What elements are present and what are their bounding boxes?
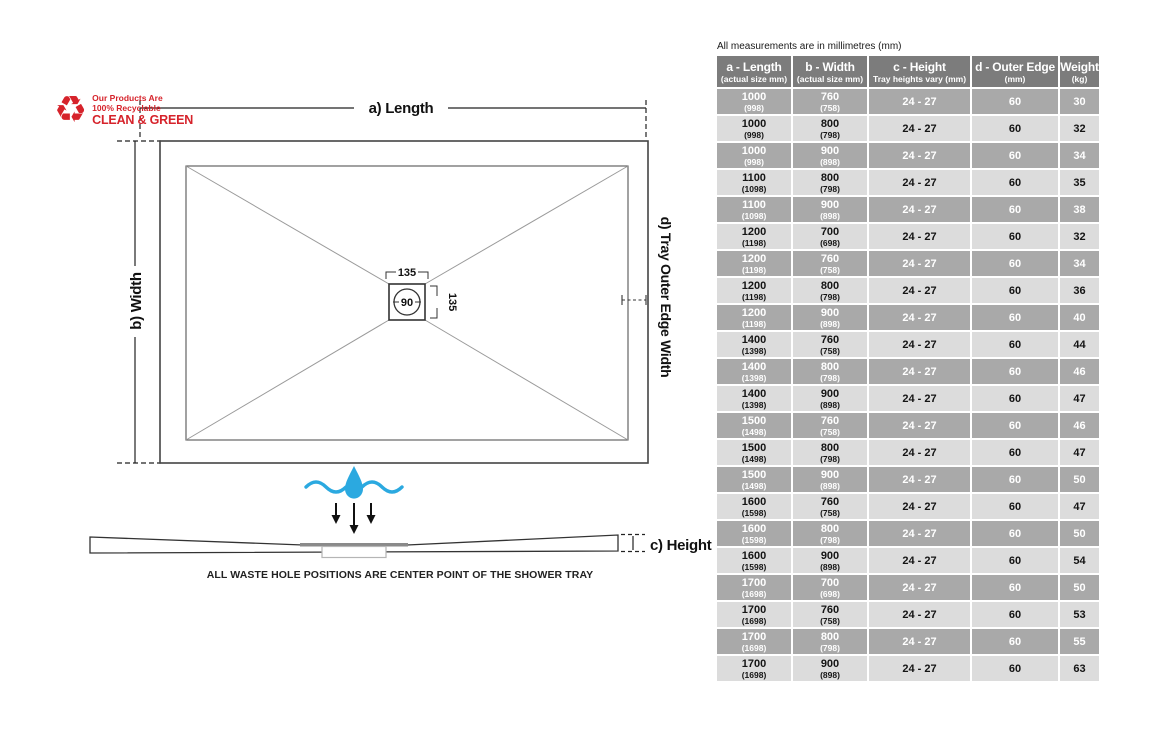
col-header-length: a - Length (actual size mm) bbox=[717, 56, 791, 87]
cell-height: 24 - 27 bbox=[869, 224, 970, 249]
cell-width-nominal: 900 bbox=[793, 550, 867, 562]
cell-width: 900 (898) bbox=[793, 197, 867, 222]
cell-outer-edge: 60 bbox=[972, 602, 1058, 627]
cell-width-actual: (698) bbox=[793, 589, 867, 599]
cell-height: 24 - 27 bbox=[869, 386, 970, 411]
cell-width: 900 (898) bbox=[793, 467, 867, 492]
cell-length-nominal: 1200 bbox=[717, 280, 791, 292]
cell-width: 800 (798) bbox=[793, 278, 867, 303]
cell-length: 1400 (1398) bbox=[717, 359, 791, 384]
cell-width-nominal: 900 bbox=[793, 307, 867, 319]
cell-length-nominal: 1500 bbox=[717, 415, 791, 427]
cell-width: 760 (758) bbox=[793, 602, 867, 627]
spec-table-row: 1400 (1398) 760 (758) 24 - 27 60 44 bbox=[717, 332, 1099, 357]
col-header-length-subtitle: (actual size mm) bbox=[717, 74, 791, 84]
cell-width-nominal: 760 bbox=[793, 496, 867, 508]
cell-outer-edge: 60 bbox=[972, 548, 1058, 573]
cell-length: 1100 (1098) bbox=[717, 170, 791, 195]
cell-length: 1600 (1598) bbox=[717, 548, 791, 573]
cell-height: 24 - 27 bbox=[869, 494, 970, 519]
cell-weight: 50 bbox=[1060, 467, 1099, 492]
cell-outer-edge: 60 bbox=[972, 89, 1058, 114]
cell-width: 760 (758) bbox=[793, 332, 867, 357]
spec-table-row: 1700 (1698) 900 (898) 24 - 27 60 63 bbox=[717, 656, 1099, 681]
cell-width: 760 (758) bbox=[793, 494, 867, 519]
cell-weight: 46 bbox=[1060, 413, 1099, 438]
cell-width-actual: (798) bbox=[793, 184, 867, 194]
cell-weight: 34 bbox=[1060, 251, 1099, 276]
cell-length-nominal: 1000 bbox=[717, 145, 791, 157]
cell-width-actual: (898) bbox=[793, 670, 867, 680]
cell-weight: 53 bbox=[1060, 602, 1099, 627]
cell-width: 800 (798) bbox=[793, 359, 867, 384]
logo-line-3: CLEAN & GREEN bbox=[92, 113, 193, 127]
cell-width: 760 (758) bbox=[793, 89, 867, 114]
spec-table-row: 1600 (1598) 800 (798) 24 - 27 60 50 bbox=[717, 521, 1099, 546]
cell-width: 800 (798) bbox=[793, 440, 867, 465]
cell-length-nominal: 1400 bbox=[717, 361, 791, 373]
cell-height: 24 - 27 bbox=[869, 440, 970, 465]
cell-length-actual: (1498) bbox=[717, 481, 791, 491]
cell-width-actual: (758) bbox=[793, 346, 867, 356]
cell-weight: 46 bbox=[1060, 359, 1099, 384]
cell-weight: 55 bbox=[1060, 629, 1099, 654]
cell-length-nominal: 1700 bbox=[717, 631, 791, 643]
cell-width-nominal: 760 bbox=[793, 415, 867, 427]
cell-length: 1600 (1598) bbox=[717, 494, 791, 519]
cell-width-nominal: 800 bbox=[793, 631, 867, 643]
spec-sheet-page: ♻ Our Products Are 100% Recyclable CLEAN… bbox=[0, 0, 1156, 742]
cell-outer-edge: 60 bbox=[972, 197, 1058, 222]
cell-length-nominal: 1200 bbox=[717, 307, 791, 319]
cell-length-nominal: 1500 bbox=[717, 442, 791, 454]
waste-dim-top-label: 135 bbox=[398, 267, 416, 279]
col-header-height-subtitle: Tray heights vary (mm) bbox=[869, 74, 970, 84]
cell-weight: 34 bbox=[1060, 143, 1099, 168]
cell-weight: 32 bbox=[1060, 224, 1099, 249]
cell-width-actual: (898) bbox=[793, 562, 867, 572]
cell-length: 1700 (1698) bbox=[717, 575, 791, 600]
spec-table-header: a - Length (actual size mm) b - Width (a… bbox=[717, 56, 1099, 87]
cell-outer-edge: 60 bbox=[972, 494, 1058, 519]
cell-length: 1700 (1698) bbox=[717, 656, 791, 681]
cell-length: 1400 (1398) bbox=[717, 386, 791, 411]
cell-width-nominal: 760 bbox=[793, 334, 867, 346]
cell-width-actual: (798) bbox=[793, 373, 867, 383]
cell-width-actual: (698) bbox=[793, 238, 867, 248]
cell-width-nominal: 800 bbox=[793, 172, 867, 184]
cell-height: 24 - 27 bbox=[869, 548, 970, 573]
cell-width: 760 (758) bbox=[793, 251, 867, 276]
spec-table-row: 1500 (1498) 800 (798) 24 - 27 60 47 bbox=[717, 440, 1099, 465]
cell-outer-edge: 60 bbox=[972, 629, 1058, 654]
spec-table-row: 1200 (1198) 760 (758) 24 - 27 60 34 bbox=[717, 251, 1099, 276]
waste-hole-caption: ALL WASTE HOLE POSITIONS ARE CENTER POIN… bbox=[207, 569, 594, 581]
cell-width: 900 (898) bbox=[793, 386, 867, 411]
spec-table-row: 1100 (1098) 800 (798) 24 - 27 60 35 bbox=[717, 170, 1099, 195]
cell-width: 800 (798) bbox=[793, 170, 867, 195]
cell-outer-edge: 60 bbox=[972, 251, 1058, 276]
spec-table-row: 1700 (1698) 700 (698) 24 - 27 60 50 bbox=[717, 575, 1099, 600]
cell-outer-edge: 60 bbox=[972, 575, 1058, 600]
cell-width-actual: (898) bbox=[793, 481, 867, 491]
cell-length-actual: (1198) bbox=[717, 265, 791, 275]
cell-length-actual: (998) bbox=[717, 157, 791, 167]
cell-width-actual: (758) bbox=[793, 103, 867, 113]
measurements-note: All measurements are in millimetres (mm) bbox=[717, 41, 901, 52]
col-header-outer-edge: d - Outer Edge (mm) bbox=[972, 56, 1058, 87]
spec-table-row: 1100 (1098) 900 (898) 24 - 27 60 38 bbox=[717, 197, 1099, 222]
cell-height: 24 - 27 bbox=[869, 143, 970, 168]
cell-length-actual: (1098) bbox=[717, 184, 791, 194]
cell-length-actual: (1698) bbox=[717, 643, 791, 653]
cell-width: 800 (798) bbox=[793, 116, 867, 141]
cell-length-nominal: 1000 bbox=[717, 91, 791, 103]
flow-arrows-icon bbox=[332, 503, 376, 534]
cell-length: 1700 (1698) bbox=[717, 602, 791, 627]
cell-outer-edge: 60 bbox=[972, 170, 1058, 195]
waste-sump bbox=[322, 547, 386, 558]
cell-length-actual: (1598) bbox=[717, 562, 791, 572]
cell-length-nominal: 1000 bbox=[717, 118, 791, 130]
logo-line-1: Our Products Are bbox=[92, 93, 193, 103]
col-header-width-subtitle: (actual size mm) bbox=[793, 74, 867, 84]
cell-width: 700 (698) bbox=[793, 575, 867, 600]
cell-length: 1000 (998) bbox=[717, 143, 791, 168]
cell-outer-edge: 60 bbox=[972, 413, 1058, 438]
cell-height: 24 - 27 bbox=[869, 170, 970, 195]
length-label: a) Length bbox=[369, 100, 434, 117]
cell-length-nominal: 1700 bbox=[717, 577, 791, 589]
cell-width: 900 (898) bbox=[793, 143, 867, 168]
cell-height: 24 - 27 bbox=[869, 602, 970, 627]
cell-weight: 47 bbox=[1060, 440, 1099, 465]
cell-width-nominal: 900 bbox=[793, 145, 867, 157]
cell-length-nominal: 1400 bbox=[717, 334, 791, 346]
cell-length: 1700 (1698) bbox=[717, 629, 791, 654]
cell-width-actual: (798) bbox=[793, 130, 867, 140]
waste-dim-side-label: 135 bbox=[446, 293, 458, 311]
spec-table-body: 1000 (998) 760 (758) 24 - 27 60 30 1000 … bbox=[717, 89, 1099, 681]
cell-weight: 36 bbox=[1060, 278, 1099, 303]
cell-width-actual: (798) bbox=[793, 643, 867, 653]
cell-length-nominal: 1700 bbox=[717, 604, 791, 616]
cell-outer-edge: 60 bbox=[972, 143, 1058, 168]
spec-table: a - Length (actual size mm) b - Width (a… bbox=[715, 54, 1101, 683]
waste-diameter-label: 90 bbox=[401, 297, 413, 309]
outer-edge-label: d) Tray Outer Edge Width bbox=[658, 217, 674, 378]
cell-length-actual: (1498) bbox=[717, 454, 791, 464]
cell-width-actual: (898) bbox=[793, 157, 867, 167]
cell-height: 24 - 27 bbox=[869, 575, 970, 600]
cell-outer-edge: 60 bbox=[972, 116, 1058, 141]
cell-length-nominal: 1100 bbox=[717, 199, 791, 211]
width-label: b) Width bbox=[128, 272, 145, 330]
logo-line-2: 100% Recyclable bbox=[92, 103, 193, 113]
spec-table-row: 1500 (1498) 900 (898) 24 - 27 60 50 bbox=[717, 467, 1099, 492]
cell-length: 1200 (1198) bbox=[717, 224, 791, 249]
recyclable-logo-text: Our Products Are 100% Recyclable CLEAN &… bbox=[92, 93, 193, 127]
cell-height: 24 - 27 bbox=[869, 359, 970, 384]
cell-length-nominal: 1500 bbox=[717, 469, 791, 481]
cell-length: 1200 (1198) bbox=[717, 278, 791, 303]
cell-width-nominal: 700 bbox=[793, 577, 867, 589]
cell-weight: 54 bbox=[1060, 548, 1099, 573]
spec-table-row: 1400 (1398) 900 (898) 24 - 27 60 47 bbox=[717, 386, 1099, 411]
cell-length-actual: (1698) bbox=[717, 670, 791, 680]
cell-outer-edge: 60 bbox=[972, 656, 1058, 681]
cell-width-actual: (758) bbox=[793, 508, 867, 518]
col-header-outer-edge-title: d - Outer Edge bbox=[972, 60, 1058, 74]
cell-weight: 40 bbox=[1060, 305, 1099, 330]
cell-length-actual: (1398) bbox=[717, 346, 791, 356]
cell-length: 1500 (1498) bbox=[717, 440, 791, 465]
recycle-icon: ♻ bbox=[54, 92, 87, 128]
cell-length-actual: (1598) bbox=[717, 508, 791, 518]
cell-length: 1500 (1498) bbox=[717, 467, 791, 492]
cell-length-actual: (1698) bbox=[717, 589, 791, 599]
cell-length-nominal: 1600 bbox=[717, 496, 791, 508]
cell-weight: 38 bbox=[1060, 197, 1099, 222]
cell-outer-edge: 60 bbox=[972, 440, 1058, 465]
spec-table-row: 1600 (1598) 760 (758) 24 - 27 60 47 bbox=[717, 494, 1099, 519]
cell-outer-edge: 60 bbox=[972, 386, 1058, 411]
cell-weight: 50 bbox=[1060, 521, 1099, 546]
cell-length-actual: (1398) bbox=[717, 373, 791, 383]
cell-height: 24 - 27 bbox=[869, 197, 970, 222]
cell-width-nominal: 760 bbox=[793, 253, 867, 265]
spec-table-row: 1700 (1698) 800 (798) 24 - 27 60 55 bbox=[717, 629, 1099, 654]
cell-weight: 63 bbox=[1060, 656, 1099, 681]
cell-height: 24 - 27 bbox=[869, 629, 970, 654]
spec-table-row: 1000 (998) 800 (798) 24 - 27 60 32 bbox=[717, 116, 1099, 141]
cell-width-actual: (798) bbox=[793, 292, 867, 302]
cell-length-actual: (1698) bbox=[717, 616, 791, 626]
cell-length: 1100 (1098) bbox=[717, 197, 791, 222]
cell-length: 1000 (998) bbox=[717, 116, 791, 141]
cell-weight: 47 bbox=[1060, 386, 1099, 411]
cell-length: 1400 (1398) bbox=[717, 332, 791, 357]
cell-width: 800 (798) bbox=[793, 521, 867, 546]
cell-height: 24 - 27 bbox=[869, 656, 970, 681]
recyclable-logo: ♻ Our Products Are 100% Recyclable CLEAN… bbox=[54, 92, 193, 128]
cell-length-actual: (1198) bbox=[717, 238, 791, 248]
spec-table-row: 1700 (1698) 760 (758) 24 - 27 60 53 bbox=[717, 602, 1099, 627]
cell-weight: 44 bbox=[1060, 332, 1099, 357]
cell-weight: 35 bbox=[1060, 170, 1099, 195]
cell-width-actual: (798) bbox=[793, 535, 867, 545]
cell-width-nominal: 900 bbox=[793, 388, 867, 400]
cell-height: 24 - 27 bbox=[869, 89, 970, 114]
cell-length-nominal: 1200 bbox=[717, 226, 791, 238]
cell-width-nominal: 800 bbox=[793, 442, 867, 454]
col-header-weight: Weight (kg) bbox=[1060, 56, 1099, 87]
cell-width-nominal: 800 bbox=[793, 523, 867, 535]
col-header-weight-subtitle: (kg) bbox=[1060, 74, 1099, 84]
col-header-width: b - Width (actual size mm) bbox=[793, 56, 867, 87]
cell-length: 1200 (1198) bbox=[717, 251, 791, 276]
cell-length-actual: (1198) bbox=[717, 319, 791, 329]
cell-length: 1600 (1598) bbox=[717, 521, 791, 546]
cell-width-nominal: 800 bbox=[793, 361, 867, 373]
cell-width: 900 (898) bbox=[793, 548, 867, 573]
cell-outer-edge: 60 bbox=[972, 521, 1058, 546]
cell-length-actual: (1198) bbox=[717, 292, 791, 302]
cell-width-actual: (898) bbox=[793, 319, 867, 329]
cell-outer-edge: 60 bbox=[972, 305, 1058, 330]
cell-height: 24 - 27 bbox=[869, 467, 970, 492]
spec-table-row: 1000 (998) 760 (758) 24 - 27 60 30 bbox=[717, 89, 1099, 114]
spec-table-row: 1200 (1198) 800 (798) 24 - 27 60 36 bbox=[717, 278, 1099, 303]
cell-height: 24 - 27 bbox=[869, 332, 970, 357]
spec-header-row: a - Length (actual size mm) b - Width (a… bbox=[717, 56, 1099, 87]
col-header-width-title: b - Width bbox=[793, 60, 867, 74]
spec-table-row: 1000 (998) 900 (898) 24 - 27 60 34 bbox=[717, 143, 1099, 168]
cell-outer-edge: 60 bbox=[972, 467, 1058, 492]
cell-weight: 30 bbox=[1060, 89, 1099, 114]
cell-length-actual: (1498) bbox=[717, 427, 791, 437]
cell-length: 1500 (1498) bbox=[717, 413, 791, 438]
spec-table-row: 1600 (1598) 900 (898) 24 - 27 60 54 bbox=[717, 548, 1099, 573]
col-header-height-title: c - Height bbox=[869, 60, 970, 74]
cell-width-nominal: 900 bbox=[793, 469, 867, 481]
cell-width-nominal: 760 bbox=[793, 604, 867, 616]
cell-outer-edge: 60 bbox=[972, 224, 1058, 249]
cell-width: 900 (898) bbox=[793, 656, 867, 681]
cell-length-nominal: 1700 bbox=[717, 658, 791, 670]
cell-width-nominal: 800 bbox=[793, 118, 867, 130]
cell-outer-edge: 60 bbox=[972, 359, 1058, 384]
cell-length-actual: (1398) bbox=[717, 400, 791, 410]
cell-width-actual: (758) bbox=[793, 616, 867, 626]
cell-width: 760 (758) bbox=[793, 413, 867, 438]
cell-width-nominal: 760 bbox=[793, 91, 867, 103]
cell-height: 24 - 27 bbox=[869, 413, 970, 438]
cell-length-nominal: 1600 bbox=[717, 523, 791, 535]
cell-width: 800 (798) bbox=[793, 629, 867, 654]
cell-width: 900 (898) bbox=[793, 305, 867, 330]
cell-height: 24 - 27 bbox=[869, 116, 970, 141]
cell-length-actual: (998) bbox=[717, 103, 791, 113]
spec-table-row: 1500 (1498) 760 (758) 24 - 27 60 46 bbox=[717, 413, 1099, 438]
cell-width-actual: (758) bbox=[793, 427, 867, 437]
col-header-length-title: a - Length bbox=[717, 60, 791, 74]
cell-length: 1200 (1198) bbox=[717, 305, 791, 330]
cell-width-actual: (758) bbox=[793, 265, 867, 275]
cell-width-nominal: 900 bbox=[793, 658, 867, 670]
cell-length-nominal: 1400 bbox=[717, 388, 791, 400]
cell-length-actual: (998) bbox=[717, 130, 791, 140]
cell-length-nominal: 1600 bbox=[717, 550, 791, 562]
col-header-outer-edge-subtitle: (mm) bbox=[972, 74, 1058, 84]
cell-width-actual: (898) bbox=[793, 211, 867, 221]
col-header-height: c - Height Tray heights vary (mm) bbox=[869, 56, 970, 87]
cell-height: 24 - 27 bbox=[869, 251, 970, 276]
cell-length: 1000 (998) bbox=[717, 89, 791, 114]
spec-table-row: 1200 (1198) 900 (898) 24 - 27 60 40 bbox=[717, 305, 1099, 330]
cell-weight: 32 bbox=[1060, 116, 1099, 141]
cell-width-nominal: 700 bbox=[793, 226, 867, 238]
height-label: c) Height bbox=[650, 537, 712, 554]
cell-weight: 50 bbox=[1060, 575, 1099, 600]
cell-width-nominal: 800 bbox=[793, 280, 867, 292]
cell-outer-edge: 60 bbox=[972, 278, 1058, 303]
tray-profile-section bbox=[90, 535, 618, 558]
height-dimension-bracket bbox=[621, 535, 645, 552]
water-drop-icon bbox=[306, 466, 402, 499]
cell-length-nominal: 1100 bbox=[717, 172, 791, 184]
cell-length-actual: (1098) bbox=[717, 211, 791, 221]
cell-width-nominal: 900 bbox=[793, 199, 867, 211]
cell-height: 24 - 27 bbox=[869, 305, 970, 330]
cell-weight: 47 bbox=[1060, 494, 1099, 519]
spec-table-row: 1200 (1198) 700 (698) 24 - 27 60 32 bbox=[717, 224, 1099, 249]
cell-length-actual: (1598) bbox=[717, 535, 791, 545]
cell-length-nominal: 1200 bbox=[717, 253, 791, 265]
cell-width-actual: (898) bbox=[793, 400, 867, 410]
cell-width-actual: (798) bbox=[793, 454, 867, 464]
col-header-weight-title: Weight bbox=[1060, 60, 1099, 74]
spec-table-row: 1400 (1398) 800 (798) 24 - 27 60 46 bbox=[717, 359, 1099, 384]
cell-height: 24 - 27 bbox=[869, 521, 970, 546]
cell-width: 700 (698) bbox=[793, 224, 867, 249]
cell-outer-edge: 60 bbox=[972, 332, 1058, 357]
cell-height: 24 - 27 bbox=[869, 278, 970, 303]
